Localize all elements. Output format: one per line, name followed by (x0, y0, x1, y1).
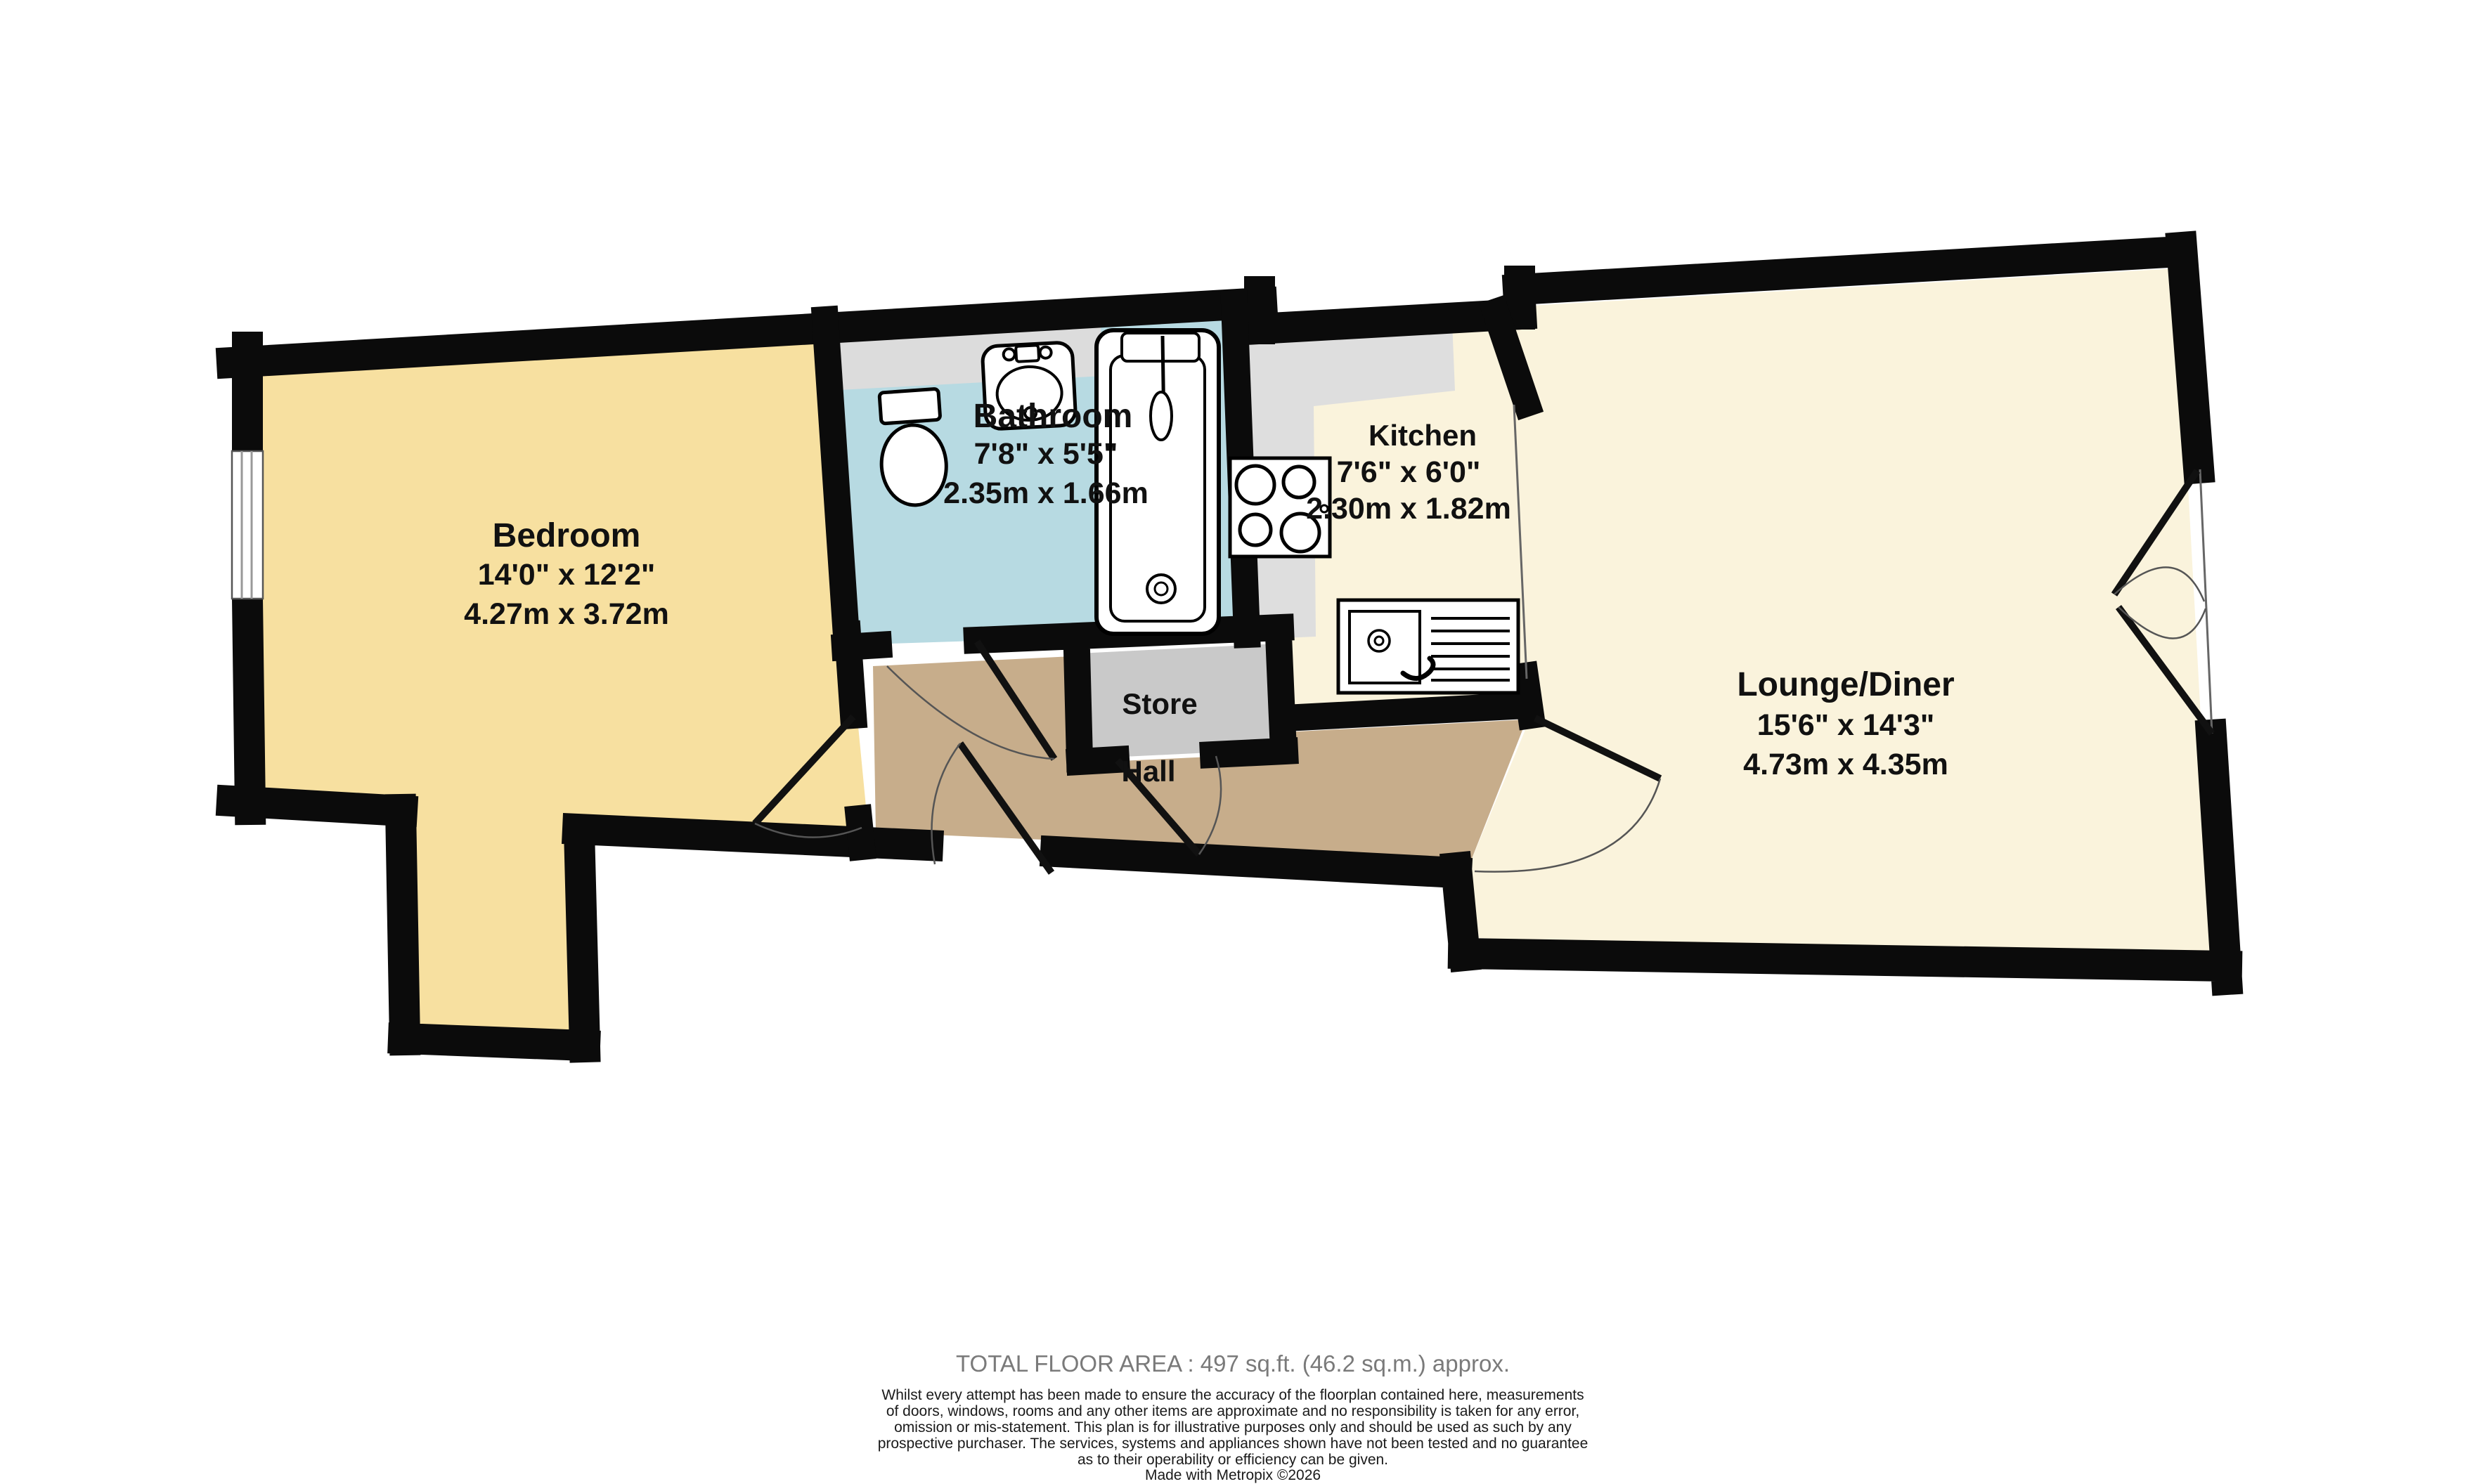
window-icon (232, 451, 263, 599)
disclaimer-line-2: of doors, windows, rooms and any other i… (886, 1403, 1579, 1419)
disclaimer-line-5: as to their operability or efficiency ca… (1078, 1452, 1388, 1468)
patio-opening-line (2200, 469, 2212, 734)
disclaimer-line-3: omission or mis-statement. This plan is … (894, 1419, 1572, 1436)
kitchen-label: Kitchen (1369, 419, 1477, 452)
floor-plan: Bedroom 14'0" x 12'2" 4.27m x 3.72m Bath… (0, 0, 2465, 1484)
bedroom-dim-imperial: 14'0" x 12'2" (478, 558, 656, 592)
lounge-floor (1469, 268, 2214, 961)
bathroom-dim-imperial: 7'8" x 5'5" (974, 437, 1118, 471)
lounge-label: Lounge/Diner (1737, 666, 1954, 703)
floorplan-page: Bedroom 14'0" x 12'2" 4.27m x 3.72m Bath… (0, 0, 2465, 1484)
bedroom-label: Bedroom (493, 517, 641, 554)
bedroom-floor (247, 326, 870, 1044)
hall-label: Hall (1121, 755, 1175, 788)
disclaimer-line-4: prospective purchaser. The services, sys… (878, 1436, 1589, 1452)
kitchen-sink-icon (1338, 600, 1518, 693)
bathroom-label: Bathroom (973, 398, 1133, 435)
kitchen-dim-imperial: 7'6" x 6'0" (1337, 455, 1481, 489)
bathroom-dim-metric: 2.35m x 1.66m (943, 476, 1149, 510)
kitchen-dim-metric: 2.30m x 1.82m (1306, 492, 1511, 526)
total-floor-area: TOTAL FLOOR AREA : 497 sq.ft. (46.2 sq.m… (956, 1350, 1510, 1376)
made-with-credit: Made with Metropix ©2026 (1145, 1467, 1321, 1483)
bedroom-dim-metric: 4.27m x 3.72m (464, 597, 669, 631)
footer: TOTAL FLOOR AREA : 497 sq.ft. (46.2 sq.m… (878, 1350, 1589, 1483)
disclaimer-line-1: Whilst every attempt has been made to en… (881, 1387, 1584, 1403)
toilet-icon (876, 389, 949, 507)
store-label: Store (1122, 687, 1197, 720)
lounge-dim-imperial: 15'6" x 14'3" (1757, 708, 1935, 742)
lounge-dim-metric: 4.73m x 4.35m (1743, 748, 1948, 781)
